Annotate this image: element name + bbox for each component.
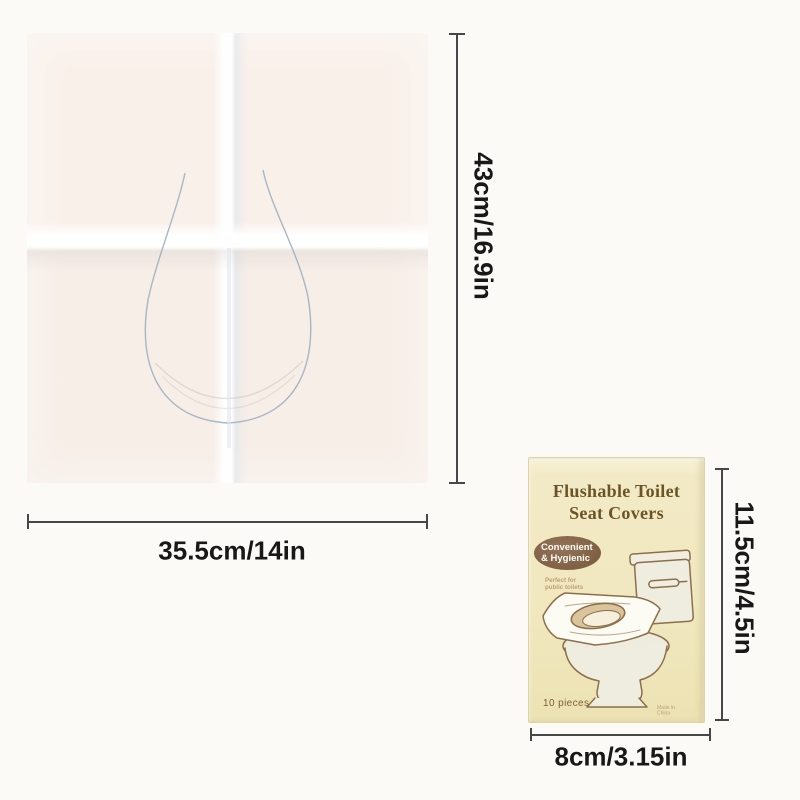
dimension-tick [449, 482, 465, 484]
package-height-label: 11.5cm/4.5in [729, 501, 760, 654]
package-pieces-label: 10 pieces [543, 698, 589, 709]
toilet-illustration-icon [535, 546, 699, 716]
sheet-width-label: 35.5cm/14in [158, 536, 305, 567]
dimension-line [456, 33, 458, 483]
dimension-line [721, 468, 723, 721]
product-dimension-image: 43cm/16.9in 35.5cm/14in Flushable Toilet… [0, 0, 800, 800]
dimension-tick [709, 728, 711, 741]
package-origin-label: Made in China [657, 705, 681, 716]
sheet-height-label: 43cm/16.9in [468, 152, 499, 299]
package-title: Flushable Toilet Seat Covers [529, 480, 704, 524]
dimension-tick [530, 728, 532, 741]
package-width-label: 8cm/3.15in [555, 742, 688, 773]
dimension-tick [27, 514, 29, 529]
seat-cover-sheet [27, 33, 428, 483]
dimension-line [27, 521, 427, 523]
dimension-tick [449, 33, 465, 35]
package-title-line2: Seat Covers [529, 502, 704, 524]
dimension-tick [715, 468, 729, 470]
dimension-tick [426, 514, 428, 529]
u-shaped-cutout [27, 33, 428, 483]
dimension-tick [715, 719, 729, 721]
product-package: Flushable Toilet Seat Covers Convenient … [528, 457, 705, 723]
package-title-line1: Flushable Toilet [529, 480, 704, 502]
dimension-line [530, 734, 711, 736]
